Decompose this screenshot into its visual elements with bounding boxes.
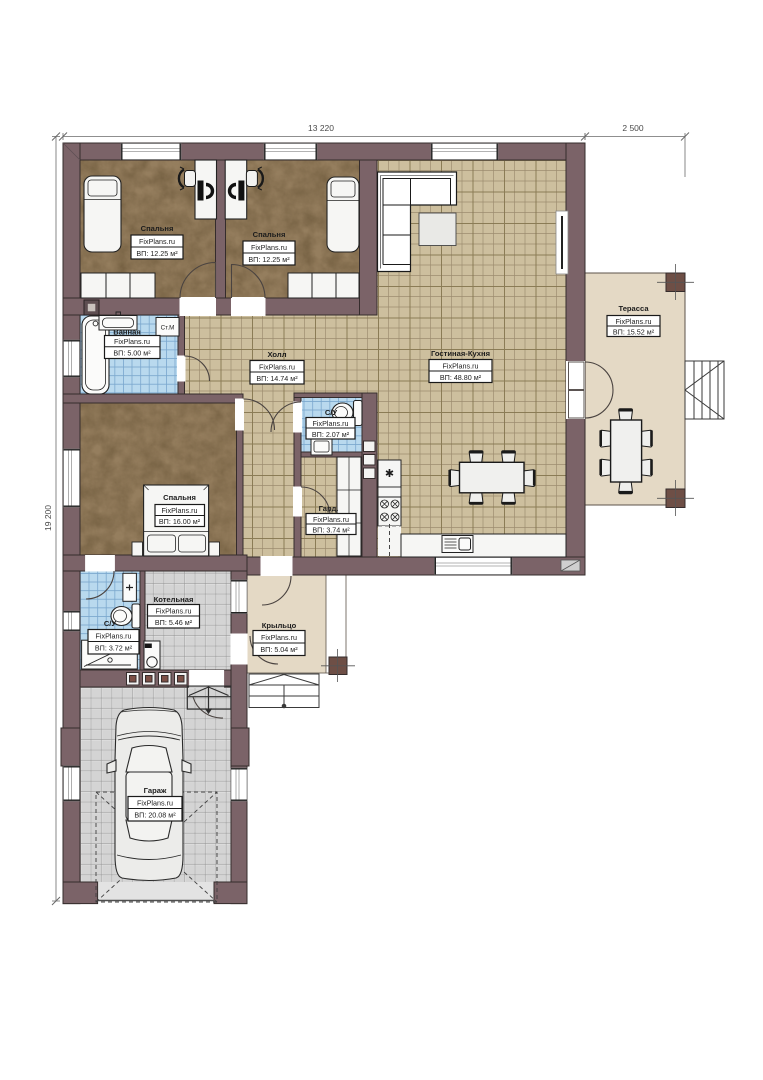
svg-text:FixPlans.ru: FixPlans.ru: [156, 607, 192, 616]
svg-text:Гард.: Гард.: [319, 504, 339, 513]
svg-text:Терасса: Терасса: [618, 304, 649, 313]
svg-text:FixPlans.ru: FixPlans.ru: [162, 506, 198, 515]
svg-text:FixPlans.ru: FixPlans.ru: [313, 419, 349, 428]
svg-text:С/У: С/У: [104, 619, 117, 628]
svg-text:FixPlans.ru: FixPlans.ru: [251, 243, 287, 252]
svg-text:ВП: 5.46 м²: ВП: 5.46 м²: [155, 618, 193, 627]
svg-text:Гараж: Гараж: [144, 786, 167, 795]
svg-text:Гостиная-Кухня: Гостиная-Кухня: [431, 349, 490, 358]
svg-text:Холл: Холл: [267, 350, 286, 359]
svg-text:FixPlans.ru: FixPlans.ru: [137, 799, 173, 808]
svg-text:Спальня: Спальня: [163, 493, 196, 502]
svg-text:ВП: 5.04 м²: ВП: 5.04 м²: [260, 645, 298, 654]
svg-text:С/У: С/У: [325, 408, 338, 417]
svg-text:✱: ✱: [385, 468, 394, 480]
svg-text:13 220: 13 220: [308, 123, 334, 133]
svg-text:Ст.М: Ст.М: [161, 325, 175, 332]
svg-text:FixPlans.ru: FixPlans.ru: [443, 362, 479, 371]
svg-text:ВП: 20.08 м²: ВП: 20.08 м²: [134, 811, 176, 820]
svg-text:ВП: 48.80 м²: ВП: 48.80 м²: [440, 373, 482, 382]
svg-text:FixPlans.ru: FixPlans.ru: [96, 632, 132, 641]
svg-text:ВП: 12.25 м²: ВП: 12.25 м²: [136, 249, 178, 258]
svg-text:FixPlans.ru: FixPlans.ru: [114, 337, 150, 346]
svg-text:ВП: 3.72 м²: ВП: 3.72 м²: [95, 644, 133, 653]
svg-text:ВП: 5.00 м²: ВП: 5.00 м²: [113, 349, 151, 358]
svg-text:ВП: 14.74 м²: ВП: 14.74 м²: [256, 374, 298, 383]
svg-text:19 200: 19 200: [43, 505, 53, 531]
svg-text:Крыльцо: Крыльцо: [262, 621, 297, 630]
svg-text:FixPlans.ru: FixPlans.ru: [259, 363, 295, 372]
svg-text:ВП: 2.07 м²: ВП: 2.07 м²: [312, 430, 350, 439]
svg-text:FixPlans.ru: FixPlans.ru: [139, 237, 175, 246]
svg-text:FixPlans.ru: FixPlans.ru: [261, 633, 297, 642]
svg-text:FixPlans.ru: FixPlans.ru: [616, 317, 652, 326]
svg-text:Спальня: Спальня: [253, 230, 286, 239]
svg-text:FixPlans.ru: FixPlans.ru: [313, 515, 349, 524]
svg-text:2 500: 2 500: [622, 123, 644, 133]
svg-text:Котельная: Котельная: [154, 595, 194, 604]
svg-text:ВП: 3.74 м²: ВП: 3.74 м²: [312, 526, 350, 535]
svg-text:ВП: 12.25 м²: ВП: 12.25 м²: [248, 255, 290, 264]
svg-text:ВП: 16.00 м²: ВП: 16.00 м²: [159, 517, 201, 526]
svg-text:ВП: 15.52 м²: ВП: 15.52 м²: [613, 328, 655, 337]
svg-text:Спальня: Спальня: [141, 224, 174, 233]
